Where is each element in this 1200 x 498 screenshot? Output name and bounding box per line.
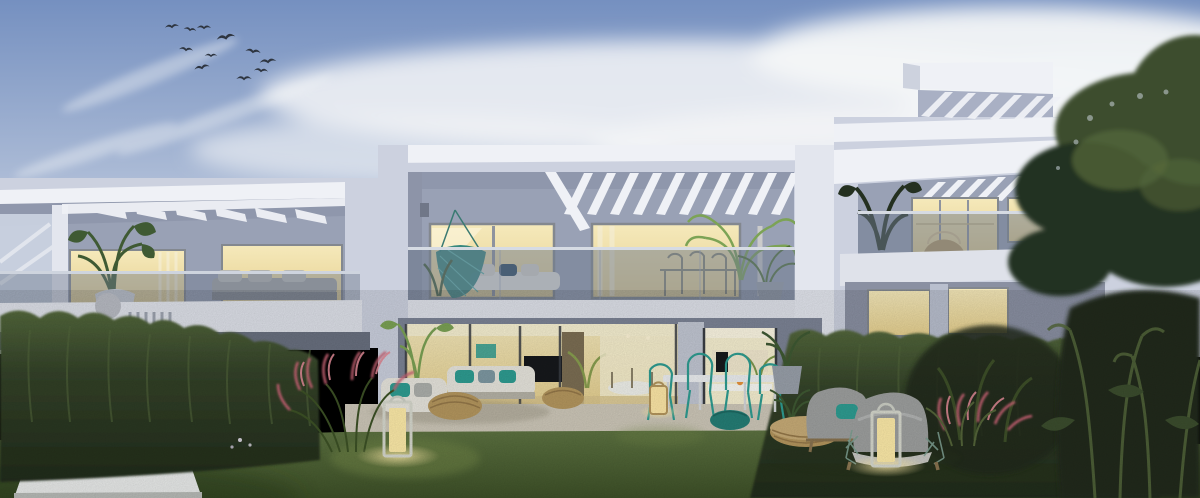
render-canvas [0,0,1200,498]
rooftop-box-side [903,63,920,90]
vent [420,203,429,217]
center-roof-edge [378,145,834,163]
balustrade-rail [402,247,802,250]
villa-render-image [0,0,1200,498]
grass-texture-overlay [0,290,1200,498]
balustrade-rail [0,271,360,274]
